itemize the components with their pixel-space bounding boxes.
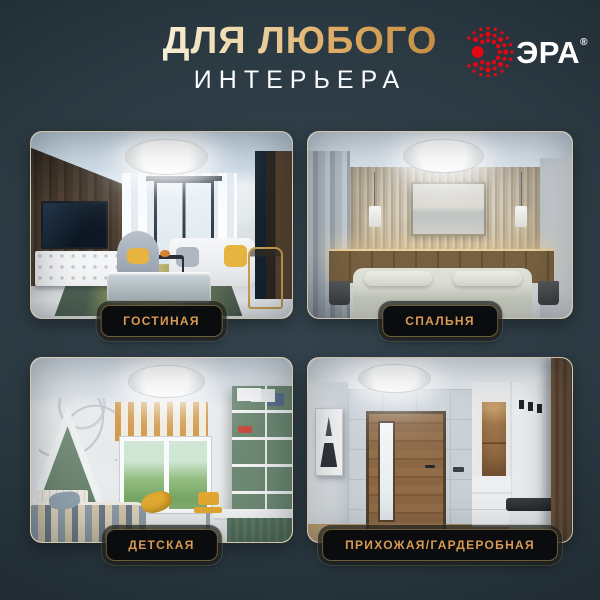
toy-shelf xyxy=(232,386,292,515)
room-label: СПАЛЬНЯ xyxy=(405,314,475,328)
light-switch xyxy=(453,467,464,473)
room-label: ГОСТИНАЯ xyxy=(123,314,200,328)
nightstand-left xyxy=(329,281,350,305)
room-label-badge: ПРИХОЖАЯ/ГАРДЕРОБНАЯ xyxy=(322,529,558,561)
bench-cushion xyxy=(506,498,556,511)
desk-top xyxy=(214,509,292,518)
brand-name: ЭРА® xyxy=(516,37,588,68)
pendant-lamp-left xyxy=(369,206,381,226)
wall-art xyxy=(315,408,343,476)
poster: ДЛЯ ЛЮБОГО ИНТЕРЬЕРА ЭРА® ГОСТИНАЯ xyxy=(0,0,600,600)
nightstand-right xyxy=(538,281,559,305)
registered-trademark-icon: ® xyxy=(580,37,588,48)
room-label-badge: ГОСТИНАЯ xyxy=(100,305,223,337)
era-logo-icon xyxy=(460,24,516,80)
door-glass-strip xyxy=(378,421,395,523)
lit-niche xyxy=(482,402,506,476)
ceiling-lamp xyxy=(125,139,208,174)
room-card-living: ГОСТИНАЯ xyxy=(30,131,293,319)
gold-side-table xyxy=(248,247,283,309)
room-label-badge: ДЕТСКАЯ xyxy=(105,529,217,561)
ceiling-lamp xyxy=(403,139,484,174)
wood-panel xyxy=(551,358,572,542)
pendant-lamp-right xyxy=(515,206,527,226)
tv-screen xyxy=(41,201,108,250)
room-card-kids: ДЕТСКАЯ xyxy=(30,357,293,543)
coat-hooks xyxy=(519,400,524,408)
armchair xyxy=(117,231,159,276)
desk-base xyxy=(227,518,292,542)
title-line-1: ДЛЯ ЛЮБОГО xyxy=(163,22,438,62)
ottoman xyxy=(107,272,211,304)
bench-base xyxy=(509,511,554,531)
room-label-badge: СПАЛЬНЯ xyxy=(382,305,498,337)
ceiling-lamp xyxy=(358,364,431,394)
room-photo-bedroom xyxy=(307,131,573,319)
door-handle xyxy=(425,465,434,468)
wall-art xyxy=(411,182,486,236)
room-photo-kids xyxy=(30,357,293,543)
room-card-bedroom: СПАЛЬНЯ xyxy=(307,131,573,319)
ceiling-lamp xyxy=(128,365,206,397)
room-label: ПРИХОЖАЯ/ГАРДЕРОБНАЯ xyxy=(345,538,535,552)
brand-logo: ЭРА® xyxy=(460,24,588,80)
room-photo-hallway xyxy=(307,357,573,543)
storage-boxes xyxy=(237,388,260,401)
room-card-hallway: ПРИХОЖАЯ/ГАРДЕРОБНАЯ xyxy=(307,357,573,543)
room-photo-living xyxy=(30,131,293,319)
chair-back xyxy=(198,492,219,505)
room-label: ДЕТСКАЯ xyxy=(128,538,194,552)
